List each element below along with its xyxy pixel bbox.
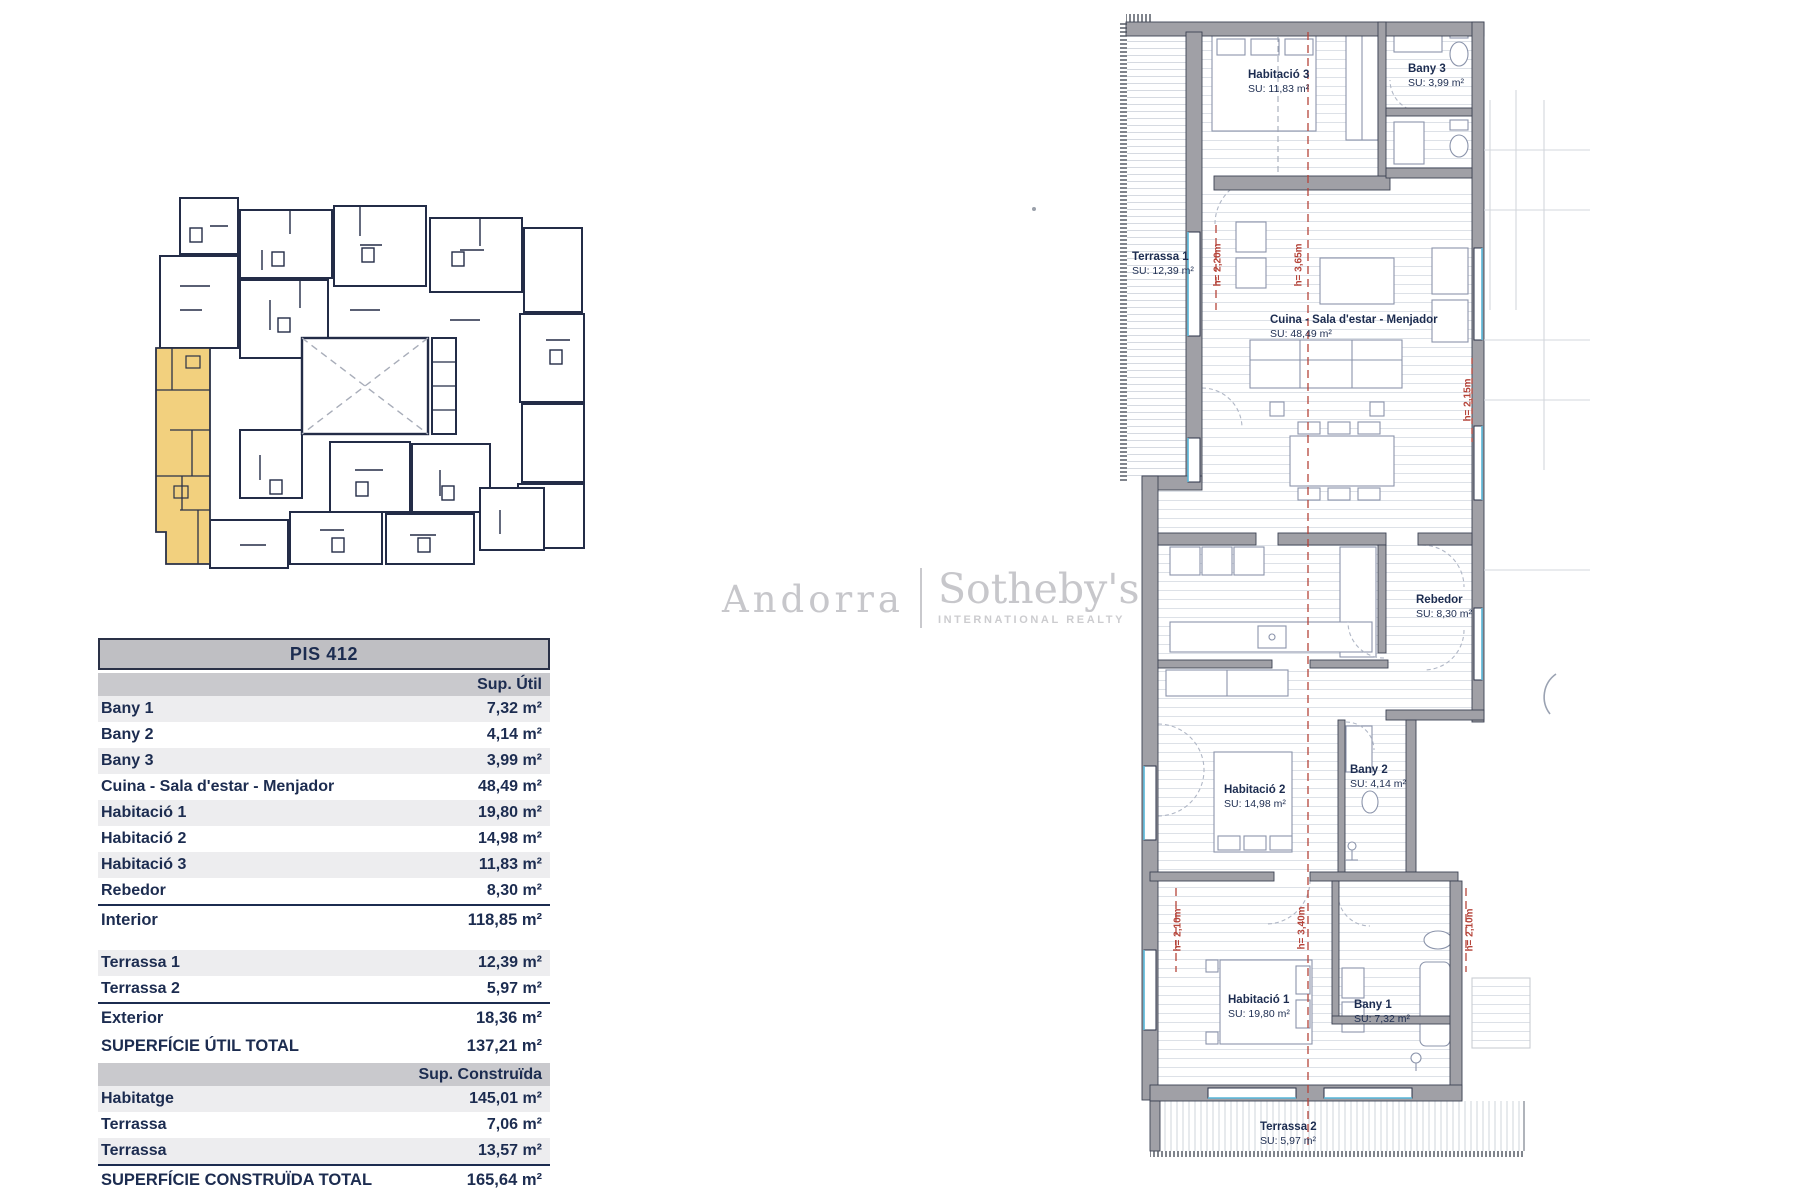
exterior-total-row: Exterior 18,36 m² [98, 1002, 550, 1032]
height-annotation: h= 2,20m [1213, 243, 1224, 286]
adjacent-structures [1472, 90, 1590, 1048]
row-value: 12,39 m² [478, 954, 542, 972]
row-value: 5,97 m² [487, 980, 542, 998]
building-overview-plan [150, 190, 590, 582]
height-annotation: h= 2,10m [1465, 908, 1476, 951]
table-row: Terrassa 13,57 m² [98, 1138, 550, 1164]
room-label-habitacio-2: Habitació 2 SU: 14,98 m² [1224, 783, 1286, 812]
height-annotation: h= 2,15m [1463, 378, 1474, 421]
highlighted-unit [156, 348, 210, 564]
overview-courtyard [302, 338, 456, 434]
row-value: 165,64 m² [467, 1171, 542, 1190]
scan-speck [1032, 207, 1036, 211]
table-row: Bany 2 4,14 m² [98, 722, 550, 748]
watermark-sothebys: Sotheby's [938, 568, 1140, 611]
table-row: Rebedor 8,30 m² [98, 878, 550, 904]
row-label: Cuina - Sala d'estar - Menjador [101, 778, 334, 796]
row-label: Habitació 2 [101, 830, 186, 848]
row-label: SUPERFÍCIE CONSTRUÏDA TOTAL [101, 1171, 372, 1190]
table-row: Terrassa 7,06 m² [98, 1112, 550, 1138]
brand-watermark: Andorra Sotheby's INTERNATIONAL REALTY [722, 568, 1140, 628]
row-value: 48,49 m² [478, 778, 542, 796]
row-value: 3,99 m² [487, 752, 542, 770]
room-label-habitacio-1: Habitació 1 SU: 19,80 m² [1228, 993, 1290, 1022]
table-row: Terrassa 2 5,97 m² [98, 976, 550, 1002]
column-header-sup-construida: Sup. Construïda [98, 1063, 550, 1086]
construida-total-row: SUPERFÍCIE CONSTRUÏDA TOTAL 165,64 m² [98, 1164, 550, 1194]
scanned-floorplan-page: PIS 412 Sup. Útil Bany 1 7,32 m² Bany 2 … [0, 0, 1800, 1200]
apartment-floorplan: Habitació 3 SU: 11,83 m² Bany 3 SU: 3,99… [1120, 10, 1595, 1165]
watermark-andorra: Andorra [722, 578, 904, 621]
table-row: Cuina - Sala d'estar - Menjador 48,49 m² [98, 774, 550, 800]
table-row: Bany 1 7,32 m² [98, 696, 550, 722]
row-label: SUPERFÍCIE ÚTIL TOTAL [101, 1037, 299, 1056]
table-row: Habitació 3 11,83 m² [98, 852, 550, 878]
watermark-subtitle: INTERNATIONAL REALTY [938, 614, 1140, 626]
watermark-divider [920, 568, 922, 628]
room-label-habitacio-3: Habitació 3 SU: 11,83 m² [1248, 68, 1309, 97]
watermark-right: Sotheby's INTERNATIONAL REALTY [938, 568, 1140, 626]
height-annotation: h= 2,10m [1173, 908, 1184, 951]
floorplan-drawing [1120, 10, 1595, 1165]
row-value: 13,57 m² [478, 1142, 542, 1160]
row-label: Terrassa [101, 1116, 167, 1134]
room-label-cuina-sala: Cuina - Sala d'estar - Menjador SU: 48,4… [1270, 313, 1438, 342]
row-label: Bany 1 [101, 700, 153, 718]
table-spacer [98, 934, 550, 950]
row-label: Terrassa [101, 1142, 167, 1160]
row-label: Rebedor [101, 882, 166, 900]
row-label: Bany 3 [101, 752, 153, 770]
row-value: 145,01 m² [469, 1090, 542, 1108]
row-label: Interior [101, 911, 158, 930]
row-value: 7,32 m² [487, 700, 542, 718]
row-label: Bany 2 [101, 726, 153, 744]
row-value: 11,83 m² [479, 856, 542, 874]
row-value: 137,21 m² [467, 1037, 542, 1056]
interior-total-row: Interior 118,85 m² [98, 904, 550, 934]
height-annotation: h= 3,65m [1294, 243, 1305, 286]
room-label-terrassa-2: Terrassa 2 SU: 5,97 m² [1260, 1120, 1317, 1149]
row-label: Terrassa 2 [101, 980, 180, 998]
room-label-bany-3: Bany 3 SU: 3,99 m² [1408, 62, 1464, 91]
room-label-bany-2: Bany 2 SU: 4,14 m² [1350, 763, 1406, 792]
table-title: PIS 412 [98, 638, 550, 670]
table-row: Habitació 2 14,98 m² [98, 826, 550, 852]
overview-plan-drawing [150, 190, 590, 582]
row-value: 4,14 m² [487, 726, 542, 744]
room-label-bany-1: Bany 1 SU: 7,32 m² [1354, 998, 1410, 1027]
row-label: Habitatge [101, 1090, 174, 1108]
row-label: Terrassa 1 [101, 954, 180, 972]
row-value: 7,06 m² [487, 1116, 542, 1134]
table-row: Terrassa 1 12,39 m² [98, 950, 550, 976]
row-value: 118,85 m² [468, 911, 542, 930]
room-label-rebedor: Rebedor SU: 8,30 m² [1416, 593, 1472, 622]
row-value: 14,98 m² [478, 830, 542, 848]
row-label: Exterior [101, 1009, 163, 1028]
row-value: 8,30 m² [487, 882, 542, 900]
row-value: 19,80 m² [478, 804, 542, 822]
util-total-row: SUPERFÍCIE ÚTIL TOTAL 137,21 m² [98, 1032, 550, 1060]
row-label: Habitació 3 [101, 856, 186, 874]
table-row: Bany 3 3,99 m² [98, 748, 550, 774]
table-row: Habitació 1 19,80 m² [98, 800, 550, 826]
table-row: Habitatge 145,01 m² [98, 1086, 550, 1112]
room-label-terrassa-1: Terrassa 1 SU: 12,39 m² [1132, 250, 1194, 279]
row-label: Habitació 1 [101, 804, 186, 822]
row-value: 18,36 m² [476, 1009, 542, 1028]
column-header-sup-util: Sup. Útil [98, 673, 550, 696]
areas-table: PIS 412 Sup. Útil Bany 1 7,32 m² Bany 2 … [98, 638, 550, 1194]
height-annotation: h= 3,40m [1297, 906, 1308, 949]
